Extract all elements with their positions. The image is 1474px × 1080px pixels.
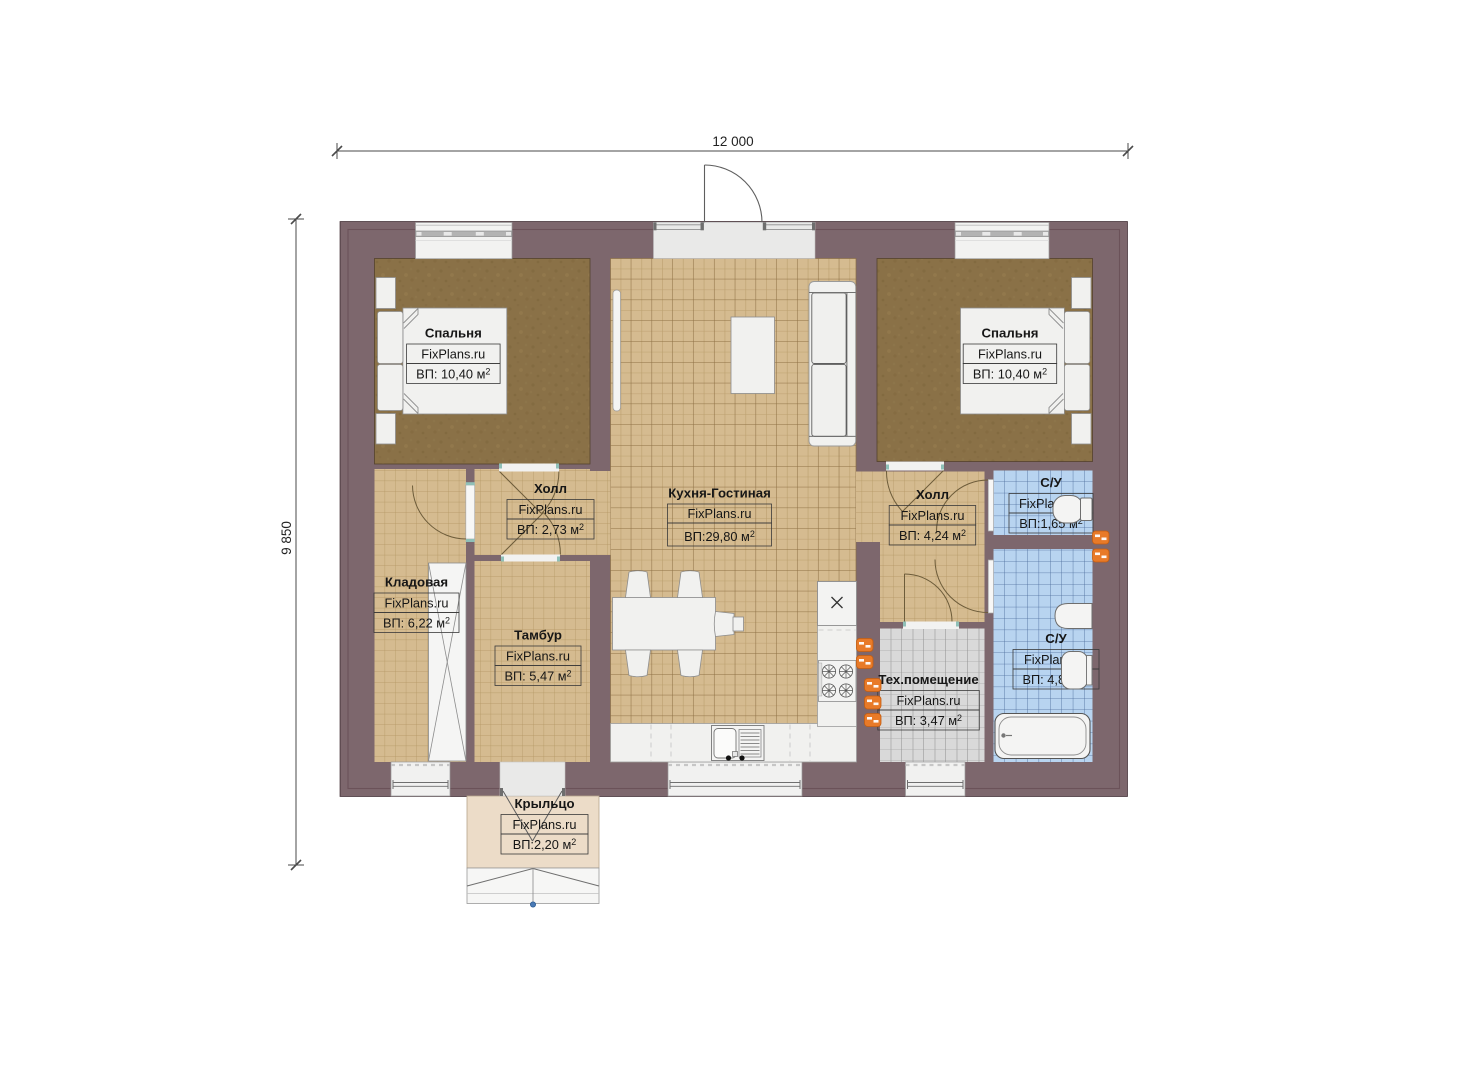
- svg-text:Крыльцо: Крыльцо: [514, 796, 574, 811]
- svg-text:ВП:29,80 м2: ВП:29,80 м2: [684, 529, 755, 544]
- svg-text:9 850: 9 850: [279, 521, 294, 555]
- svg-text:С/У: С/У: [1045, 631, 1067, 646]
- svg-text:Холл: Холл: [916, 487, 949, 502]
- svg-text:ВП: 10,40 м2: ВП: 10,40 м2: [416, 367, 490, 382]
- svg-text:Спальня: Спальня: [425, 326, 482, 341]
- svg-text:12 000: 12 000: [712, 134, 753, 149]
- svg-text:Спальня: Спальня: [982, 326, 1039, 341]
- svg-text:FixPlans.ru: FixPlans.ru: [512, 817, 576, 832]
- svg-text:Тех.помещение: Тех.помещение: [878, 672, 978, 687]
- svg-text:С/У: С/У: [1040, 475, 1062, 490]
- svg-text:Кладовая: Кладовая: [385, 575, 448, 590]
- svg-text:FixPlans.ru: FixPlans.ru: [896, 693, 960, 708]
- svg-text:Тамбур: Тамбур: [514, 628, 562, 643]
- svg-text:FixPlans.ru: FixPlans.ru: [384, 596, 448, 611]
- svg-text:ВП:2,20 м2: ВП:2,20 м2: [513, 837, 577, 852]
- svg-text:FixPlans.ru: FixPlans.ru: [421, 347, 485, 362]
- svg-text:Кухня-Гостиная: Кухня-Гостиная: [668, 486, 771, 501]
- svg-text:ВП: 6,22 м2: ВП: 6,22 м2: [383, 616, 450, 631]
- svg-text:FixPlans.ru: FixPlans.ru: [518, 502, 582, 517]
- svg-text:ВП: 3,47 м2: ВП: 3,47 м2: [895, 713, 962, 728]
- svg-text:ВП: 5,47 м2: ВП: 5,47 м2: [504, 669, 571, 684]
- svg-text:ВП: 2,73 м2: ВП: 2,73 м2: [517, 522, 584, 537]
- svg-text:ВП: 10,40 м2: ВП: 10,40 м2: [973, 367, 1047, 382]
- svg-text:FixPlans.ru: FixPlans.ru: [506, 649, 570, 664]
- svg-text:ВП: 4,24 м2: ВП: 4,24 м2: [899, 528, 966, 543]
- svg-text:FixPlans.ru: FixPlans.ru: [900, 508, 964, 523]
- svg-text:FixPlans.ru: FixPlans.ru: [978, 347, 1042, 362]
- svg-text:Холл: Холл: [534, 481, 567, 496]
- svg-text:FixPlans.ru: FixPlans.ru: [687, 506, 751, 521]
